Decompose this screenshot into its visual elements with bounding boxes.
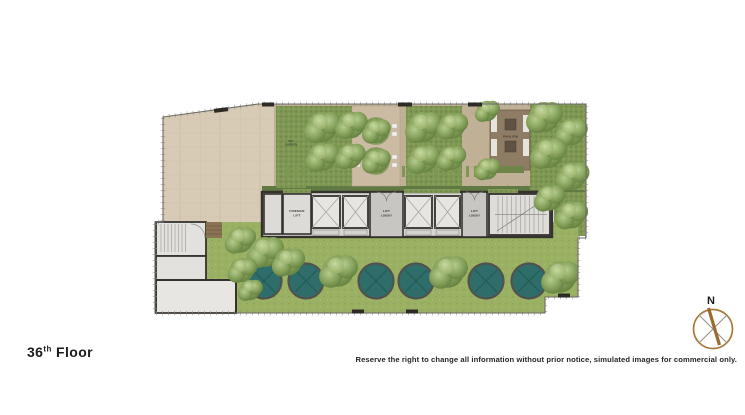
service-room-large [156,280,236,313]
floor-plan-drawing: PAVILION SKY GARDEN FIREMAN LIFT [0,0,745,415]
lift-shaft [312,196,340,228]
page-title: 36th Floor [27,344,93,360]
fireman-lift-label: FIREMAN [289,209,305,213]
floorplan-page: PAVILION SKY GARDEN FIREMAN LIFT [0,0,745,415]
service-room [156,256,206,280]
lobby-b-label: LIFT [471,209,478,213]
floor-word: Floor [56,344,93,360]
disclaimer-text: Reserve the right to change all informat… [356,355,737,364]
lift-shaft [343,196,368,228]
floor-ordinal: th [43,344,51,353]
pool [399,264,434,299]
plan-notch [579,236,595,306]
pavilion-table [505,119,516,130]
sky-garden-hedge [276,106,306,188]
vestibule [264,194,282,234]
lift-lobby-b: LIFT LOBBY [462,192,487,237]
core-hedge [283,189,311,193]
lift-lobby-a: LIFT LOBBY [370,192,403,237]
stair-room-left [156,222,206,256]
pavilion-canopy [491,139,497,156]
fireman-lift-room: FIREMAN LIFT [283,194,311,234]
lift-shaft [405,196,432,228]
lift-core: FIREMAN LIFT [262,189,552,237]
floor-number: 36 [27,344,43,360]
lift-shaft [435,196,460,228]
lobby-b-label2: LOBBY [469,213,481,217]
plan-notch [546,298,594,318]
svg-text:SKY: SKY [288,139,294,143]
core-hedge [404,189,460,193]
pavilion-canopy [523,139,529,156]
pavilion-table [505,141,516,152]
deck-steps [206,222,222,238]
lobby-a-label2: LOBBY [381,213,393,217]
compass: N [694,295,733,349]
compass-north-label: N [707,295,715,307]
svg-text:GARDEN: GARDEN [285,142,297,146]
fireman-lift-label2: LIFT [293,213,300,217]
lobby-a-label: LIFT [383,209,390,213]
pool [359,264,394,299]
pool [469,264,504,299]
pavilion-label: PAVILION [503,135,519,139]
core-hedge [488,189,518,193]
